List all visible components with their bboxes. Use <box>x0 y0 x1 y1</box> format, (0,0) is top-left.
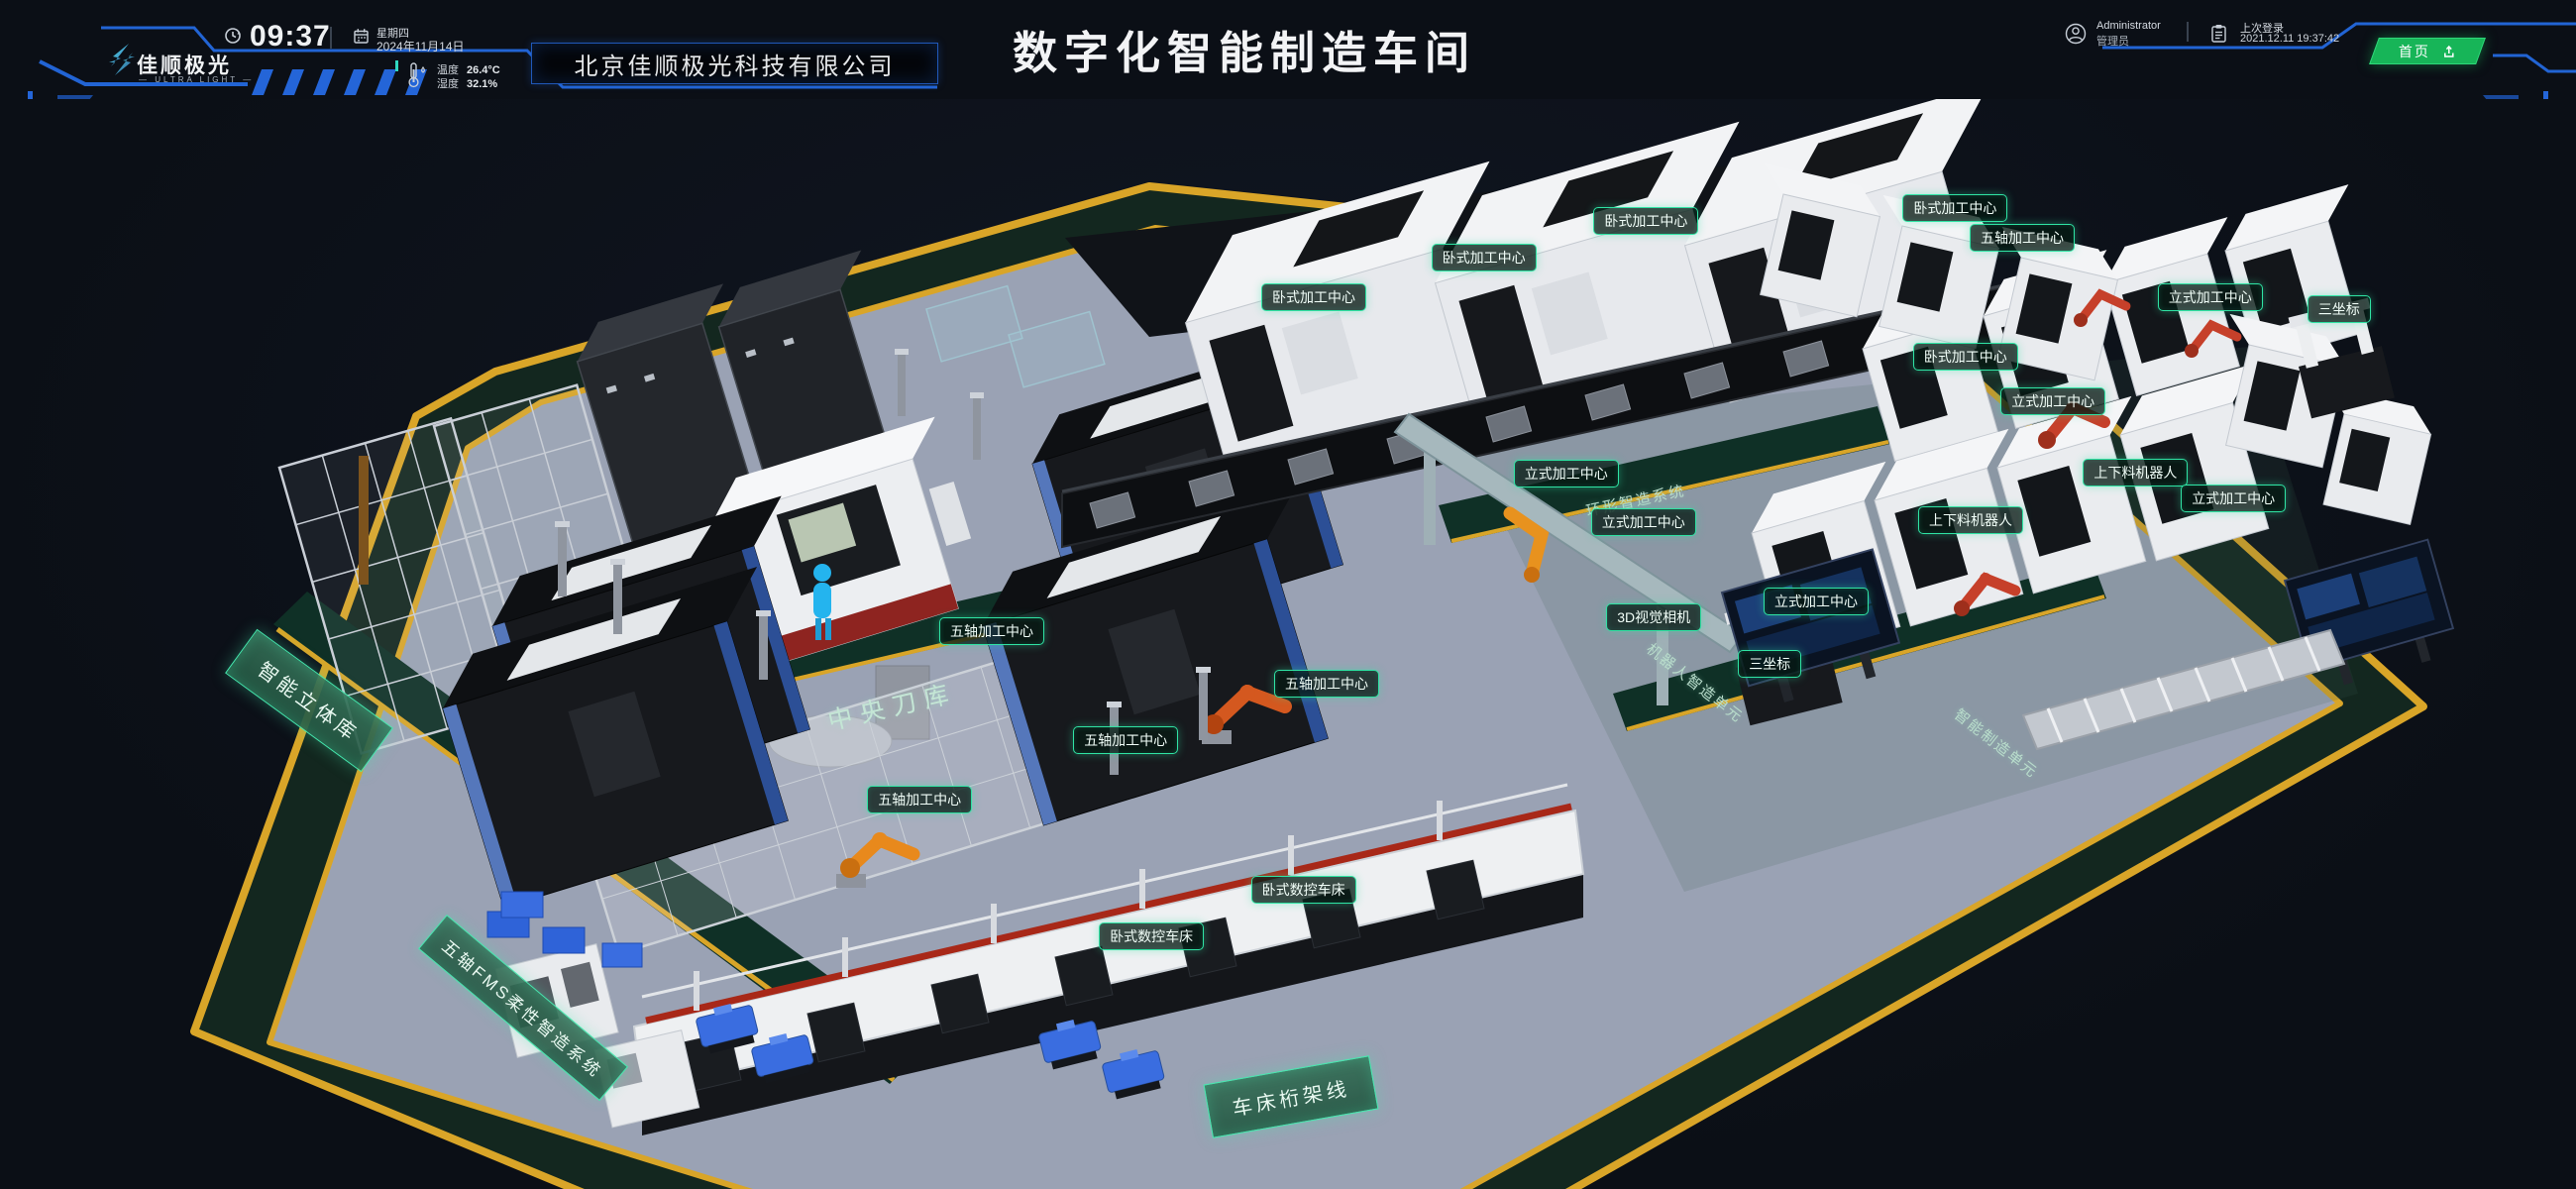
logo-icon <box>107 44 137 75</box>
humidity-row: 湿度32.1% <box>437 75 497 91</box>
machine-label[interactable]: 卧式加工中心 <box>1913 343 2018 371</box>
calendar-icon <box>353 28 370 45</box>
machine-label[interactable]: 立式加工中心 <box>2158 283 2263 311</box>
humidity-label: 湿度 <box>437 78 459 90</box>
machine-label[interactable]: 卧式加工中心 <box>1902 194 2007 222</box>
humidity-value: 32.1% <box>467 78 497 90</box>
home-button-label: 首页 <box>2399 42 2430 61</box>
user-role: 管理员 <box>2096 33 2129 49</box>
clock-icon <box>224 27 242 45</box>
page-title: 数字化智能制造车间 <box>1013 17 1476 81</box>
machine-label[interactable]: 立式加工中心 <box>2000 387 2105 415</box>
machine-label[interactable]: 卧式数控车床 <box>1251 876 1356 904</box>
machine-label[interactable]: 立式加工中心 <box>1514 460 1619 487</box>
weather-tick <box>395 60 398 71</box>
current-time: 09:37 <box>250 20 331 54</box>
machine-label[interactable]: 上下料机器人 <box>2083 459 2188 486</box>
user-name: Administrator <box>2096 20 2161 32</box>
machine-label[interactable]: 五轴加工中心 <box>1073 726 1178 754</box>
machine-label[interactable]: 三坐标 <box>2308 295 2371 323</box>
clipboard-icon <box>2209 24 2228 44</box>
header-divider-right <box>2187 22 2189 42</box>
machine-label[interactable]: 立式加工中心 <box>2181 485 2286 512</box>
machine-label[interactable]: 立式加工中心 <box>1591 508 1696 536</box>
hazard-stripes-icon <box>252 69 427 95</box>
machine-label[interactable]: 3D视觉相机 <box>1606 603 1701 631</box>
machine-label[interactable]: 五轴加工中心 <box>939 617 1044 645</box>
machine-label[interactable]: 上下料机器人 <box>1918 506 2023 534</box>
last-login-value: 2021.12.11 19:37:42 <box>2240 33 2339 45</box>
machine-label[interactable]: 立式加工中心 <box>1764 588 1869 615</box>
dashboard-root: 佳顺极光 — ULTRA LIGHT — 09:37 星期四 2024年11月1… <box>0 0 2576 1189</box>
logo-subtitle: — ULTRA LIGHT — <box>139 75 254 84</box>
home-button[interactable]: 首页 <box>2369 38 2486 64</box>
machine-label[interactable]: 五轴加工中心 <box>1274 670 1379 698</box>
thermometer-icon <box>406 61 428 89</box>
export-icon <box>2442 45 2456 58</box>
header-divider <box>330 27 332 49</box>
current-date: 2024年11月14日 <box>376 38 465 54</box>
machine-label[interactable]: 卧式加工中心 <box>1261 283 1366 311</box>
user-avatar-icon <box>2065 23 2087 45</box>
machine-label[interactable]: 五轴加工中心 <box>1970 224 2075 252</box>
machine-label[interactable]: 卧式数控车床 <box>1099 922 1204 950</box>
machine-label[interactable]: 三坐标 <box>1738 650 1801 678</box>
machine-label[interactable]: 卧式加工中心 <box>1432 244 1537 271</box>
machine-label[interactable]: 五轴加工中心 <box>867 786 972 813</box>
machine-label[interactable]: 卧式加工中心 <box>1593 207 1698 235</box>
company-name-plate: 北京佳顺极光科技有限公司 <box>531 43 938 84</box>
factory-3d-viewport[interactable]: 智能立体库五轴FMS柔性智造系统车床桁架线中央刀库环形智造系统机器人智造单元智能… <box>0 99 2576 1189</box>
factory-3d-scene <box>0 99 2576 1189</box>
